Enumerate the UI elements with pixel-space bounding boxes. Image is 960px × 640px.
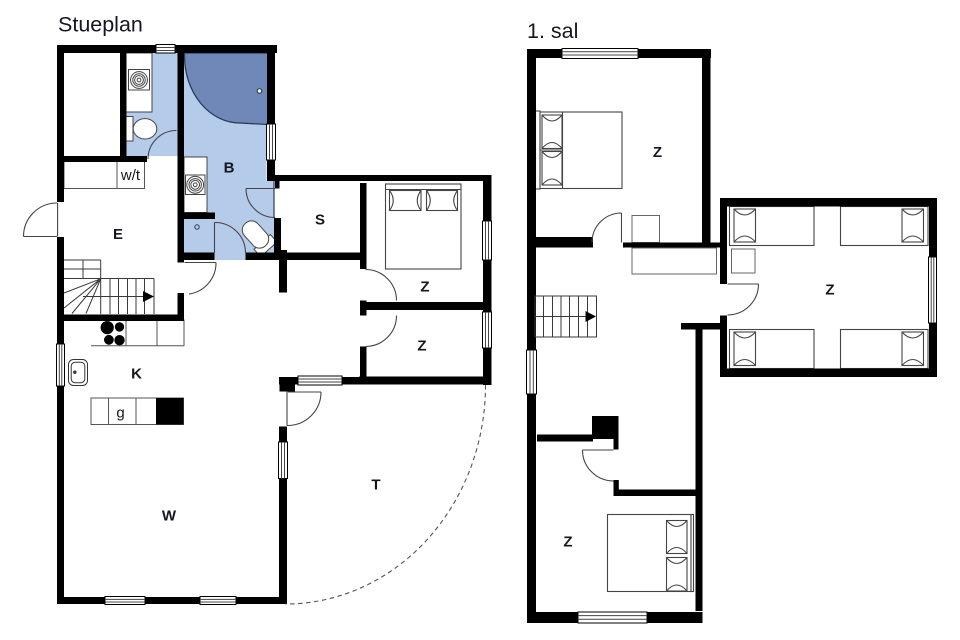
svg-text:1. sal: 1. sal xyxy=(527,19,578,43)
svg-text:Stueplan: Stueplan xyxy=(58,13,143,37)
svg-text:Z: Z xyxy=(563,534,572,551)
svg-text:g: g xyxy=(116,405,124,422)
svg-text:B: B xyxy=(224,160,235,177)
svg-text:K: K xyxy=(131,366,142,383)
svg-text:E: E xyxy=(113,226,123,243)
svg-text:W: W xyxy=(162,508,177,525)
svg-text:Z: Z xyxy=(420,279,429,296)
svg-text:S: S xyxy=(315,212,325,229)
svg-text:w/t: w/t xyxy=(120,167,141,184)
svg-text:T: T xyxy=(371,477,380,494)
svg-text:Z: Z xyxy=(825,282,834,299)
svg-text:Z: Z xyxy=(653,144,662,161)
svg-text:Z: Z xyxy=(417,338,426,355)
